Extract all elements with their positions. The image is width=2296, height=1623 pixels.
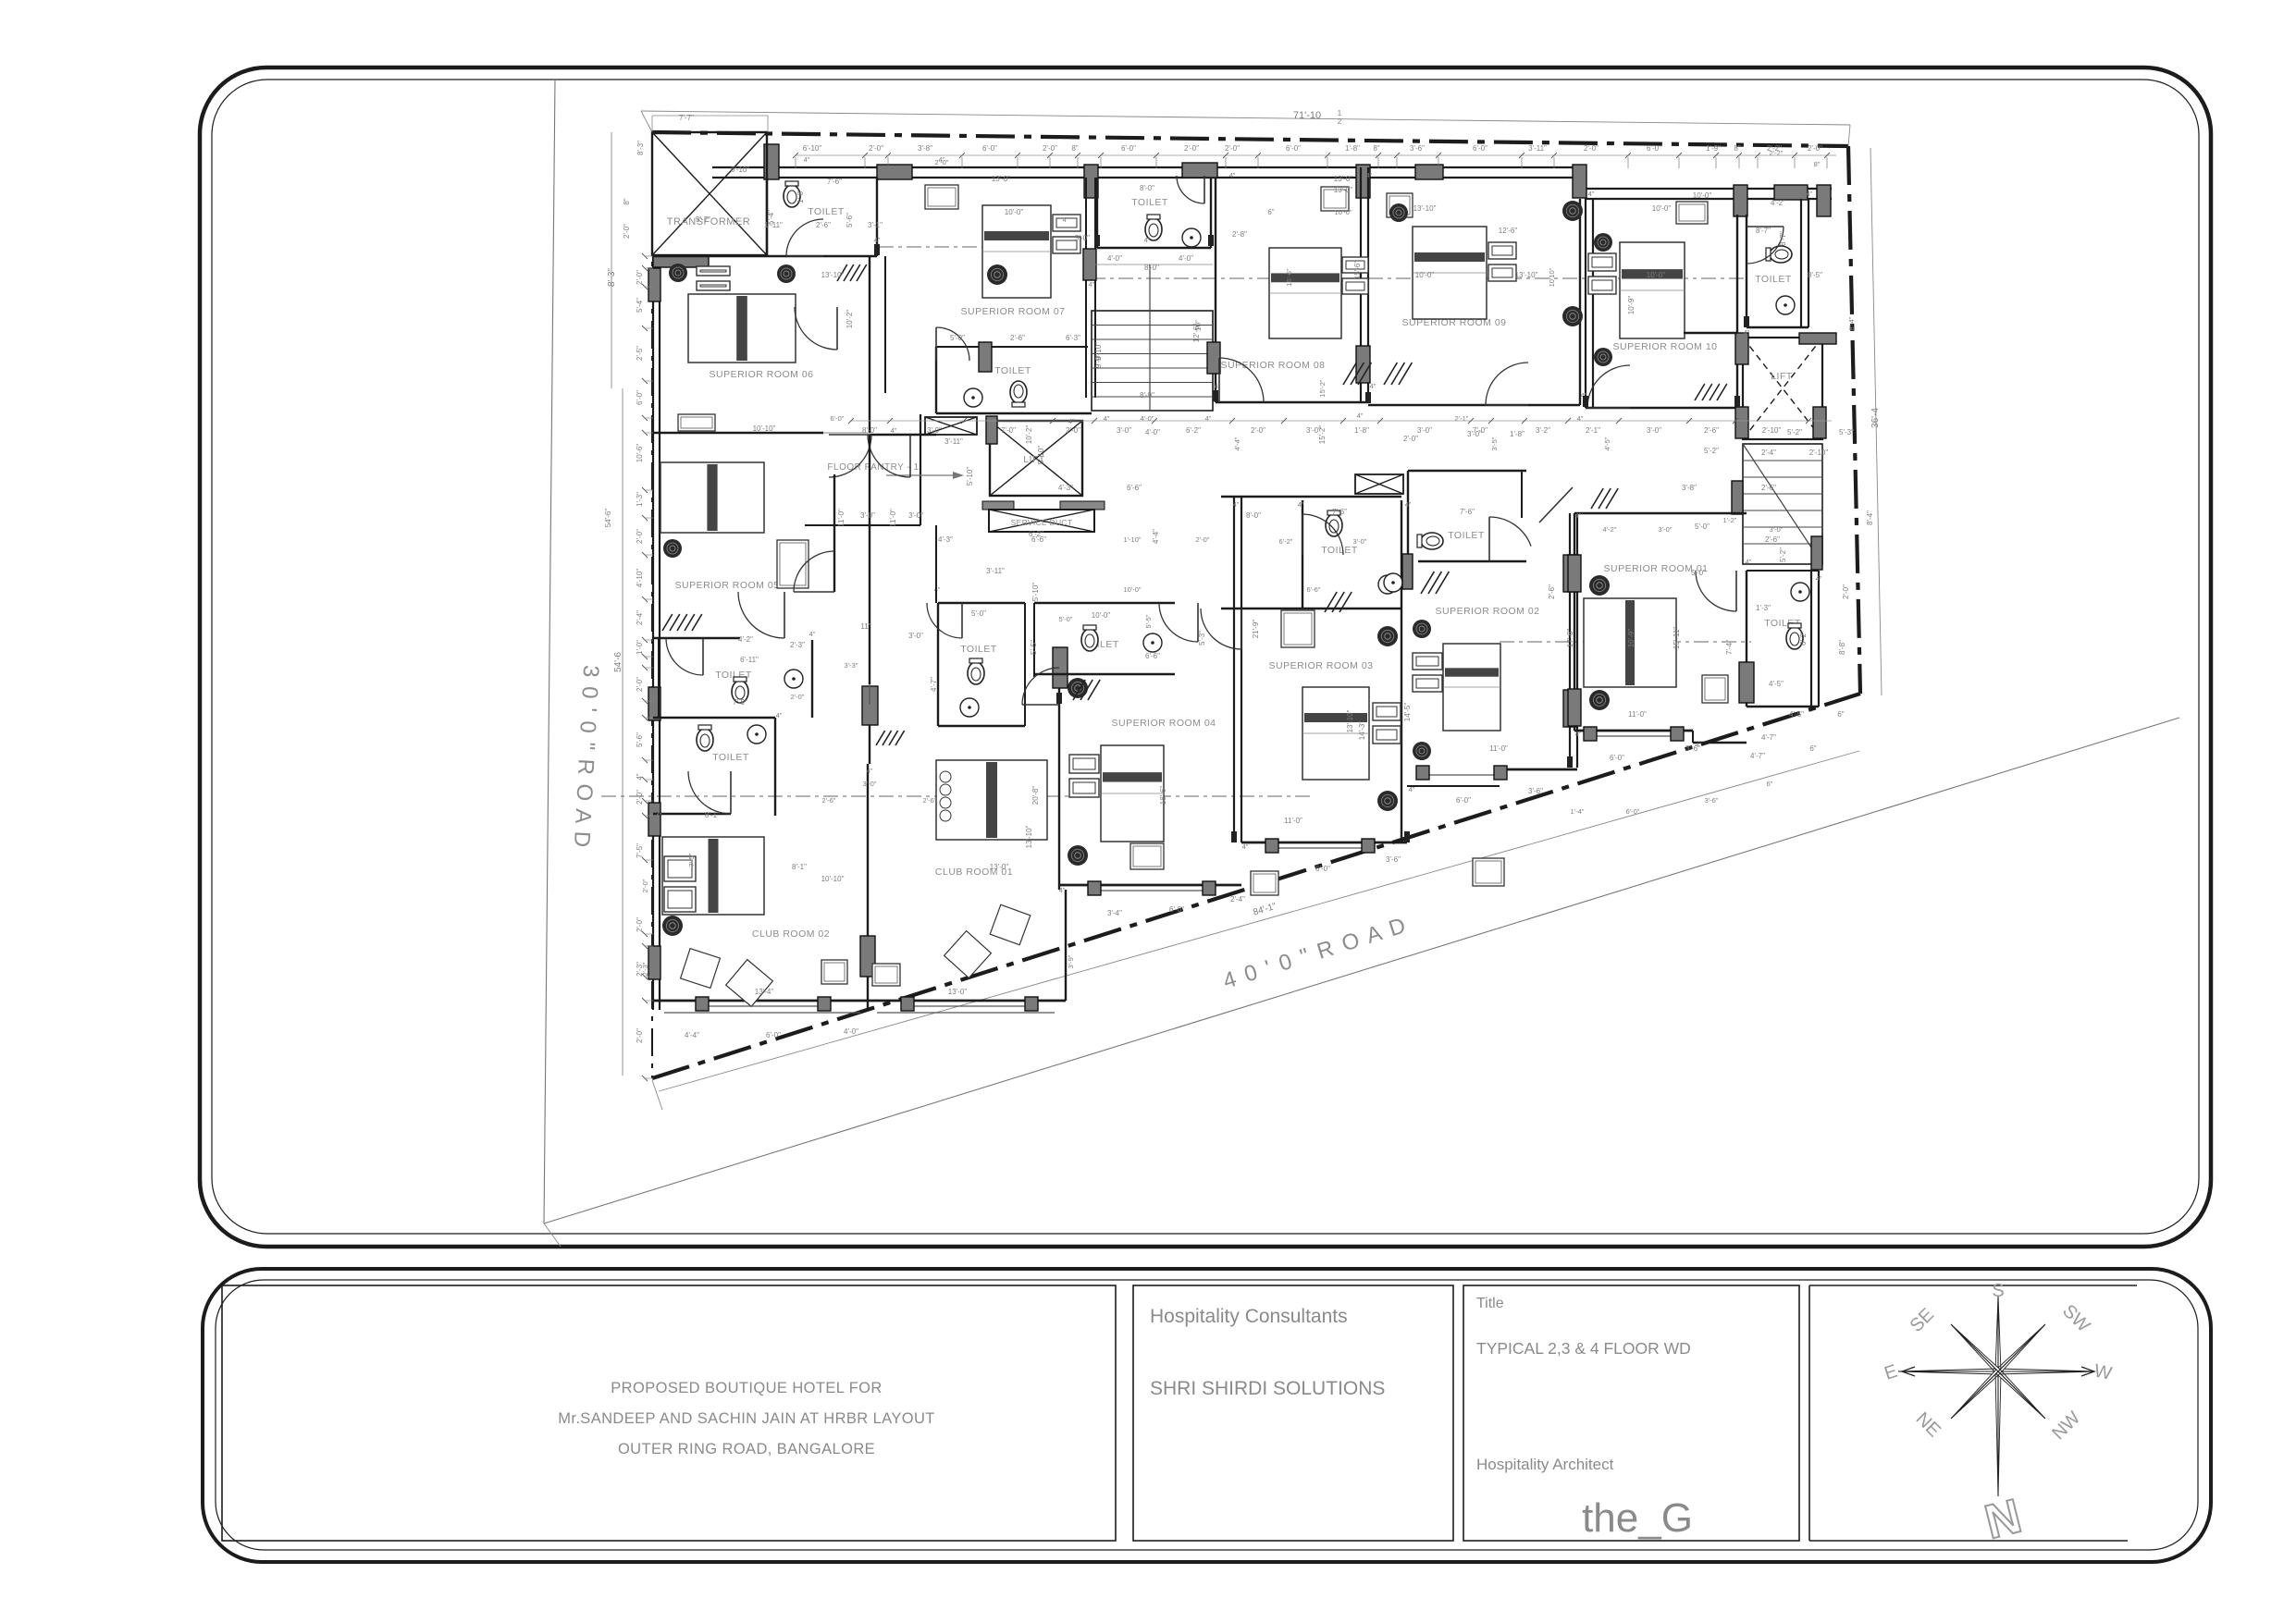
svg-text:SUPERIOR ROOM 04: SUPERIOR ROOM 04 xyxy=(1111,718,1216,729)
svg-text:10'-0": 10'-0" xyxy=(1415,271,1435,279)
svg-text:4": 4" xyxy=(1409,785,1415,793)
svg-text:4": 4" xyxy=(1366,171,1373,179)
svg-text:4": 4" xyxy=(1577,414,1584,423)
svg-text:4": 4" xyxy=(1744,328,1750,337)
svg-text:12'-6": 12'-6" xyxy=(1192,324,1201,343)
svg-text:TOILET: TOILET xyxy=(1321,545,1358,556)
svg-text:4": 4" xyxy=(1144,236,1151,244)
svg-text:6'-6": 6'-6" xyxy=(1307,585,1321,594)
svg-text:7'-5": 7'-5" xyxy=(636,843,644,858)
svg-text:10'-2": 10'-2" xyxy=(846,310,854,329)
svg-text:54'-6: 54'-6 xyxy=(613,652,623,672)
svg-text:7'-6": 7'-6" xyxy=(886,166,901,174)
svg-text:10'-10": 10'-10" xyxy=(753,424,776,433)
svg-text:3'-8": 3'-8" xyxy=(1682,484,1697,492)
svg-text:2'-3": 2'-3" xyxy=(641,962,649,976)
svg-text:6": 6" xyxy=(1267,208,1274,216)
svg-text:4": 4" xyxy=(867,767,873,775)
svg-text:2'-4": 2'-4" xyxy=(1761,449,1776,457)
svg-text:11'-0": 11'-0" xyxy=(1284,817,1302,825)
svg-text:8'-4": 8'-4" xyxy=(1847,316,1856,330)
svg-text:PROPOSED BOUTIQUE HOTEL FOR: PROPOSED BOUTIQUE HOTEL FOR xyxy=(611,1380,882,1396)
svg-text:7'-6": 7'-6" xyxy=(827,178,842,186)
svg-text:11'-0": 11'-0" xyxy=(889,509,897,527)
svg-text:4": 4" xyxy=(891,426,897,435)
svg-text:TYPICAL 2,3 & 4 FLOOR WD: TYPICAL 2,3 & 4 FLOOR WD xyxy=(1476,1339,1691,1358)
svg-text:3'-0": 3'-0" xyxy=(1117,426,1131,435)
svg-text:CLUB ROOM 02: CLUB ROOM 02 xyxy=(752,928,830,940)
svg-text:SUPERIOR ROOM 06: SUPERIOR ROOM 06 xyxy=(709,369,813,380)
svg-text:3'-0": 3'-0" xyxy=(908,632,923,640)
svg-text:2'-0": 2'-0" xyxy=(636,270,644,285)
svg-text:SUPERIOR ROOM 02: SUPERIOR ROOM 02 xyxy=(1435,606,1539,617)
svg-text:8'-0": 8'-0" xyxy=(1144,264,1159,272)
svg-text:4'-7": 4'-7" xyxy=(930,677,938,692)
svg-text:4": 4" xyxy=(804,155,810,164)
svg-text:4": 4" xyxy=(636,773,644,780)
svg-text:Hospitality Architect: Hospitality Architect xyxy=(1476,1456,1614,1473)
svg-text:3'-9": 3'-9" xyxy=(1067,954,1075,968)
svg-text:6'-10": 6'-10" xyxy=(803,144,822,153)
svg-text:4'-0": 4'-0" xyxy=(1145,428,1160,436)
svg-text:14'-5": 14'-5" xyxy=(1403,703,1412,722)
svg-text:6": 6" xyxy=(1809,744,1816,753)
svg-text:10'-0": 10'-0" xyxy=(1334,208,1352,216)
svg-text:6'-2": 6'-2" xyxy=(1279,537,1293,546)
svg-text:1'-8": 1'-8" xyxy=(1354,426,1369,435)
svg-text:3'-0": 3'-0" xyxy=(927,426,942,435)
svg-text:8": 8" xyxy=(1373,144,1379,153)
svg-text:3'-0": 3'-0" xyxy=(1647,426,1661,435)
svg-text:11": 11" xyxy=(860,622,870,631)
svg-text:8'-9": 8'-9" xyxy=(1140,391,1154,400)
svg-text:13'-0": 13'-0" xyxy=(948,988,968,996)
svg-text:2'-0": 2'-0" xyxy=(1842,584,1850,599)
svg-text:2'-4": 2'-4" xyxy=(636,610,644,625)
svg-text:4'-10": 4'-10" xyxy=(636,569,644,588)
svg-text:4'-4": 4'-4" xyxy=(1233,436,1241,450)
svg-text:7'-5": 7'-5" xyxy=(687,853,696,867)
svg-text:6'-0": 6'-0" xyxy=(831,414,845,423)
svg-text:8'-0": 8'-0" xyxy=(1140,184,1154,192)
svg-text:TOILET: TOILET xyxy=(712,752,749,763)
svg-text:4": 4" xyxy=(656,811,662,819)
svg-text:3'-8": 3'-8" xyxy=(918,144,932,153)
svg-text:11'-0": 11'-0" xyxy=(837,509,846,527)
svg-text:3'-6": 3'-6" xyxy=(1528,787,1543,795)
svg-text:1: 1 xyxy=(1338,109,1342,117)
svg-text:11'-0": 11'-0" xyxy=(1628,710,1647,719)
svg-text:4": 4" xyxy=(1233,500,1240,509)
svg-text:11'-0": 11'-0" xyxy=(1489,744,1508,753)
svg-text:21'-9": 21'-9" xyxy=(1252,620,1260,639)
svg-text:13'-10": 13'-10" xyxy=(1515,271,1538,279)
svg-text:4": 4" xyxy=(1588,190,1595,198)
svg-text:4'-0": 4'-0" xyxy=(1107,254,1122,263)
svg-text:6'-0": 6'-0" xyxy=(982,144,997,153)
svg-text:1'-3": 1'-3" xyxy=(1756,604,1771,612)
svg-text:2'-0": 2'-0" xyxy=(641,879,649,892)
svg-text:10'10": 10'10" xyxy=(1548,267,1556,287)
svg-text:4'-0": 4'-0" xyxy=(1141,414,1154,423)
svg-text:12'-6": 12'-6" xyxy=(1499,227,1518,235)
svg-text:4'-7": 4'-7" xyxy=(1761,733,1776,742)
svg-text:2'-3": 2'-3" xyxy=(790,641,805,649)
svg-text:3'-0": 3'-0" xyxy=(908,511,923,520)
svg-text:4": 4" xyxy=(1229,171,1236,179)
svg-text:13'-0": 13'-0" xyxy=(1334,186,1353,194)
svg-text:8'-3": 8'-3" xyxy=(607,268,617,287)
svg-text:13'-0": 13'-0" xyxy=(1334,175,1353,183)
svg-text:1'-3": 1'-3" xyxy=(636,492,644,507)
svg-text:4'-4": 4'-4" xyxy=(685,1031,699,1039)
svg-text:18'-6": 18'-6" xyxy=(1159,786,1167,805)
svg-text:4": 4" xyxy=(1063,215,1069,224)
svg-text:6'-2": 6'-2" xyxy=(1186,426,1201,435)
svg-text:3'-11": 3'-11" xyxy=(1528,144,1547,153)
svg-text:7'-0": 7'-0" xyxy=(1001,426,1016,435)
svg-text:4": 4" xyxy=(1405,500,1412,509)
svg-text:6'-6": 6'-6" xyxy=(1127,484,1142,492)
svg-text:2'-6": 2'-6" xyxy=(923,796,937,805)
svg-text:6'-0": 6'-0" xyxy=(1315,865,1330,873)
svg-text:8'-3": 8'-3" xyxy=(636,141,645,155)
svg-text:2'-0": 2'-0" xyxy=(1808,144,1822,153)
svg-text:5'-5": 5'-5" xyxy=(1030,640,1038,655)
svg-text:4": 4" xyxy=(1746,558,1752,566)
svg-text:TOILET: TOILET xyxy=(808,206,845,217)
svg-text:2'-0": 2'-0" xyxy=(1584,144,1599,153)
svg-text:4": 4" xyxy=(1807,190,1813,198)
svg-text:FLOOR PANTRY - 1: FLOOR PANTRY - 1 xyxy=(827,462,919,473)
svg-text:6": 6" xyxy=(1767,780,1773,788)
svg-text:SUPERIOR ROOM 07: SUPERIOR ROOM 07 xyxy=(960,306,1065,317)
svg-text:3'-11": 3'-11" xyxy=(944,437,963,446)
svg-text:10'-0": 10'-0" xyxy=(1693,191,1712,200)
svg-text:1'-6": 1'-6" xyxy=(796,189,805,203)
svg-text:9'-0": 9'-0" xyxy=(1094,353,1103,368)
svg-text:TOILET: TOILET xyxy=(960,644,997,655)
svg-text:TOILET: TOILET xyxy=(1448,530,1485,541)
svg-text:6'-0": 6'-0" xyxy=(1121,144,1136,153)
svg-text:3'-11": 3'-11" xyxy=(986,567,1005,575)
svg-text:10'-0": 10'-0" xyxy=(1123,585,1141,594)
svg-text:Title: Title xyxy=(1476,1296,1504,1311)
svg-text:4": 4" xyxy=(1816,574,1822,583)
svg-text:20'-8": 20'-8" xyxy=(1031,786,1040,805)
svg-text:6'-0": 6'-0" xyxy=(766,1031,781,1039)
svg-text:4": 4" xyxy=(874,236,881,244)
svg-text:5'-0": 5'-0" xyxy=(1691,569,1706,577)
svg-text:15'-2": 15'-2" xyxy=(1318,379,1327,397)
svg-text:5'-7": 5'-7" xyxy=(696,215,710,224)
svg-text:4": 4" xyxy=(1357,412,1364,420)
svg-text:8'-4": 8'-4" xyxy=(1866,510,1874,525)
svg-text:2'-0": 2'-0" xyxy=(636,917,644,932)
svg-text:2'-0": 2'-0" xyxy=(636,1028,644,1043)
svg-text:2'-0": 2'-0" xyxy=(636,677,644,692)
svg-text:2'-2": 2'-2" xyxy=(1770,149,1784,157)
svg-text:4'-3": 4'-3" xyxy=(1058,484,1073,492)
svg-text:10'-10": 10'-10" xyxy=(821,875,845,883)
svg-text:4": 4" xyxy=(1089,280,1095,289)
svg-text:SUPERIOR ROOM 05: SUPERIOR ROOM 05 xyxy=(674,580,779,591)
svg-text:2'-0": 2'-0" xyxy=(1225,144,1240,153)
svg-text:5'-0": 5'-0" xyxy=(971,609,986,618)
svg-text:2'-1": 2'-1" xyxy=(1586,426,1600,435)
svg-text:3'-3": 3'-3" xyxy=(845,661,858,670)
svg-text:3'-0": 3'-0" xyxy=(1467,430,1482,438)
svg-text:5'-0": 5'-0" xyxy=(1075,234,1090,242)
svg-text:7'-6": 7'-6" xyxy=(1332,508,1347,516)
svg-text:3'-0": 3'-0" xyxy=(860,511,875,520)
svg-text:15'-6": 15'-6" xyxy=(1353,261,1362,280)
svg-text:5'-2": 5'-2" xyxy=(1787,428,1802,436)
svg-text:4": 4" xyxy=(1205,414,1212,423)
svg-text:8": 8" xyxy=(1071,144,1078,153)
svg-text:8": 8" xyxy=(1814,160,1821,168)
svg-text:3'-6": 3'-6" xyxy=(1410,144,1425,153)
svg-text:2'-5": 2'-5" xyxy=(636,346,644,361)
svg-text:6'-0": 6'-0" xyxy=(1286,144,1301,153)
svg-text:8'-8": 8'-8" xyxy=(1838,640,1846,655)
svg-text:8'-7": 8'-7" xyxy=(1756,227,1771,235)
svg-text:5'-3": 5'-3" xyxy=(1839,428,1854,436)
svg-text:4": 4" xyxy=(1370,382,1376,390)
svg-text:4": 4" xyxy=(1740,412,1747,420)
svg-text:10'-9": 10'-9" xyxy=(1627,629,1636,648)
svg-text:3'-0": 3'-0" xyxy=(1659,525,1673,534)
svg-text:3'-0": 3'-0" xyxy=(1353,537,1367,546)
svg-text:4'-0": 4'-0" xyxy=(844,1027,858,1036)
svg-text:8'-0": 8'-0" xyxy=(862,426,877,435)
svg-text:1'-4": 1'-4" xyxy=(1571,807,1585,816)
svg-text:3'-0": 3'-0" xyxy=(1770,525,1784,534)
svg-text:15'-6": 15'-6" xyxy=(1285,268,1293,286)
svg-text:4'-4": 4'-4" xyxy=(1152,529,1160,544)
svg-text:2'-0": 2'-0" xyxy=(935,158,949,166)
svg-text:SERVICE DUCT: SERVICE DUCT xyxy=(1011,518,1073,527)
svg-text:8'-5": 8'-5" xyxy=(1808,271,1822,279)
svg-text:3'-1": 3'-1" xyxy=(868,221,883,229)
svg-text:54'-6": 54'-6" xyxy=(604,509,612,528)
svg-text:2'-0": 2'-0" xyxy=(869,144,883,153)
svg-text:4": 4" xyxy=(1215,382,1221,390)
svg-text:10'-0": 10'-0" xyxy=(1092,611,1111,620)
svg-text:SHRI SHIRDI SOLUTIONS: SHRI SHIRDI SOLUTIONS xyxy=(1150,1378,1385,1399)
svg-text:6": 6" xyxy=(1837,710,1844,719)
svg-text:17'-6": 17'-6" xyxy=(1566,629,1574,648)
svg-text:10'-2": 10'-2" xyxy=(1025,425,1033,445)
svg-text:8": 8" xyxy=(623,198,631,204)
svg-text:6'-6": 6'-6" xyxy=(1145,652,1160,660)
svg-text:2'-0": 2'-0" xyxy=(623,224,631,239)
svg-text:15'-2": 15'-2" xyxy=(1318,425,1327,445)
svg-text:LIFT: LIFT xyxy=(1771,371,1793,382)
svg-text:2'-0": 2'-0" xyxy=(1184,144,1199,153)
svg-text:2'-1": 2'-1" xyxy=(1455,414,1469,423)
svg-text:TOILET: TOILET xyxy=(994,365,1031,376)
svg-text:3'-6": 3'-6" xyxy=(1705,796,1719,805)
svg-text:13'-10": 13'-10" xyxy=(1346,709,1354,732)
svg-text:4'-7": 4'-7" xyxy=(1750,752,1765,760)
svg-text:5'-4": 5'-4" xyxy=(767,210,775,225)
svg-text:SUPERIOR ROOM 03: SUPERIOR ROOM 03 xyxy=(1268,660,1373,671)
svg-text:5'-2": 5'-2" xyxy=(1779,547,1787,562)
svg-text:6'-0": 6'-0" xyxy=(1456,796,1471,805)
svg-text:6'-10": 6'-10" xyxy=(731,166,750,174)
svg-text:3'-2": 3'-2" xyxy=(1536,426,1550,435)
svg-text:5'-10": 5'-10" xyxy=(966,467,974,486)
svg-text:1'-2": 1'-2" xyxy=(1723,516,1737,524)
svg-text:8'-1": 8'-1" xyxy=(792,863,807,871)
svg-text:4'-0": 4'-0" xyxy=(1179,254,1193,263)
svg-text:5'-0": 5'-0" xyxy=(950,334,965,342)
svg-text:14'-3": 14'-3" xyxy=(1358,721,1366,741)
svg-text:1'-8": 1'-8" xyxy=(1345,144,1360,153)
svg-text:2'-6": 2'-6" xyxy=(1704,426,1719,435)
svg-text:2: 2 xyxy=(1338,117,1342,126)
svg-text:Mr.SANDEEP AND SACHIN JAIN AT: Mr.SANDEEP AND SACHIN JAIN AT HRBR LAYOU… xyxy=(558,1410,935,1427)
svg-text:2'-0": 2'-0" xyxy=(636,529,644,544)
svg-text:4'-3": 4'-3" xyxy=(938,535,953,544)
svg-text:13'-10": 13'-10" xyxy=(821,271,845,279)
svg-text:Hospitality Consultants: Hospitality Consultants xyxy=(1150,1306,1348,1327)
svg-text:OUTER RING ROAD, BANGALORE: OUTER RING ROAD, BANGALORE xyxy=(618,1441,875,1457)
svg-text:10'-0": 10'-0" xyxy=(1647,271,1666,279)
svg-text:5'-0": 5'-0" xyxy=(1695,523,1710,531)
svg-text:7'-4": 7'-4" xyxy=(1725,640,1734,655)
svg-text:1'-9": 1'-9" xyxy=(1706,144,1721,153)
svg-text:2'-6": 2'-6" xyxy=(816,221,831,229)
svg-text:6'-0": 6'-0" xyxy=(1626,807,1640,816)
svg-text:3'-0": 3'-0" xyxy=(863,780,877,788)
svg-text:2'-0": 2'-0" xyxy=(636,790,644,805)
svg-text:7'-9": 7'-9" xyxy=(733,698,747,707)
svg-text:10'-6": 10'-6" xyxy=(636,444,644,463)
svg-text:4": 4" xyxy=(1298,500,1304,509)
svg-text:2'-0": 2'-0" xyxy=(1043,144,1057,153)
svg-text:6'-11": 6'-11" xyxy=(740,656,759,664)
svg-text:4": 4" xyxy=(934,585,941,594)
svg-text:2'-0": 2'-0" xyxy=(1066,426,1080,435)
svg-text:15'-11": 15'-11" xyxy=(1673,627,1681,649)
svg-text:5'-0": 5'-0" xyxy=(1059,615,1073,623)
svg-text:5'-6": 5'-6" xyxy=(636,732,644,747)
svg-text:3'-4": 3'-4" xyxy=(1107,909,1122,917)
svg-text:5'-6": 5'-6" xyxy=(846,213,854,227)
svg-text:2'-6": 2'-6" xyxy=(1010,334,1025,342)
svg-text:13'-10": 13'-10" xyxy=(1025,825,1033,848)
svg-text:2'-6": 2'-6" xyxy=(1765,535,1780,544)
svg-text:6'-0": 6'-0" xyxy=(636,390,644,405)
svg-text:2'-0": 2'-0" xyxy=(1196,535,1210,544)
svg-text:71'-10: 71'-10 xyxy=(1293,110,1321,121)
svg-text:2'-0": 2'-0" xyxy=(791,693,805,701)
svg-text:10'-0": 10'-0" xyxy=(1005,208,1024,216)
svg-text:7'-7": 7'-7" xyxy=(679,114,694,122)
svg-text:6'-2": 6'-2" xyxy=(1029,530,1043,538)
svg-text:4": 4" xyxy=(1242,842,1249,851)
svg-text:4'-5": 4'-5" xyxy=(1603,436,1611,450)
svg-text:SUPERIOR ROOM 10: SUPERIOR ROOM 10 xyxy=(1612,341,1717,352)
svg-text:3'-5": 3'-5" xyxy=(1490,436,1499,450)
svg-text:the_G: the_G xyxy=(1582,1495,1693,1541)
svg-text:1'-10": 1'-10" xyxy=(1123,535,1141,544)
svg-text:3'-0": 3'-0" xyxy=(1417,426,1432,435)
svg-text:13'-0": 13'-0" xyxy=(990,863,1009,871)
svg-text:4": 4" xyxy=(1059,886,1066,894)
svg-text:6'-0": 6'-0" xyxy=(1647,144,1661,153)
svg-text:6'-0": 6'-0" xyxy=(1610,754,1624,762)
svg-text:2'-4": 2'-4" xyxy=(1230,895,1245,904)
svg-text:2'-10": 2'-10" xyxy=(1762,426,1782,435)
svg-text:6'-0": 6'-0" xyxy=(1473,144,1487,153)
svg-text:13'-0": 13'-0" xyxy=(992,175,1011,183)
svg-text:10'-9": 10'-9" xyxy=(1627,296,1636,315)
svg-text:6'-2": 6'-2" xyxy=(1799,631,1808,646)
svg-text:5'-10": 5'-10" xyxy=(1031,583,1040,602)
svg-text:4": 4" xyxy=(1054,656,1060,664)
svg-text:2'-10": 2'-10" xyxy=(1809,449,1829,457)
svg-text:8": 8" xyxy=(1734,144,1740,153)
svg-text:2'-8": 2'-8" xyxy=(1232,230,1247,239)
svg-text:5'-5": 5'-5" xyxy=(1144,614,1153,628)
svg-text:13'-10": 13'-10" xyxy=(1413,204,1437,213)
svg-text:2'-0": 2'-0" xyxy=(1403,435,1418,443)
svg-text:4'-2": 4'-2" xyxy=(1603,525,1617,534)
svg-text:4'-5": 4'-5" xyxy=(1789,710,1804,719)
svg-text:S: S xyxy=(1992,1281,2004,1301)
svg-text:4'-2": 4'-2" xyxy=(1771,199,1785,207)
svg-text:4": 4" xyxy=(776,711,783,719)
svg-text:4'-2": 4'-2" xyxy=(738,635,753,644)
svg-text:10'-0": 10'-0" xyxy=(1652,204,1672,213)
svg-text:2'-6": 2'-6" xyxy=(822,796,836,805)
svg-text:4": 4" xyxy=(1068,417,1075,425)
svg-text:TOILET: TOILET xyxy=(1131,197,1168,208)
svg-text:2'-6": 2'-6" xyxy=(1548,584,1556,599)
svg-text:36'-4: 36'-4 xyxy=(1870,408,1881,428)
svg-text:7'-6": 7'-6" xyxy=(1460,508,1475,516)
svg-text:8'-7": 8'-7" xyxy=(1779,231,1787,246)
svg-text:TOILET: TOILET xyxy=(1755,274,1792,285)
svg-text:4'-5": 4'-5" xyxy=(1769,680,1784,688)
svg-text:4": 4" xyxy=(1104,414,1110,423)
svg-text:5'-4": 5'-4" xyxy=(636,298,644,313)
svg-text:2'-0": 2'-0" xyxy=(1251,426,1265,435)
svg-text:6'-3": 6'-3" xyxy=(1066,334,1080,342)
svg-text:5'-3": 5'-3" xyxy=(1198,631,1206,646)
svg-text:6'-0": 6'-0" xyxy=(1169,905,1184,914)
svg-text:2'-6": 2'-6" xyxy=(1761,484,1776,492)
svg-text:4": 4" xyxy=(1696,741,1702,749)
svg-text:8'-1": 8'-1" xyxy=(705,811,720,819)
svg-text:1'-0": 1'-0" xyxy=(636,640,644,655)
svg-text:3'-6": 3'-6" xyxy=(1386,855,1401,864)
svg-text:4": 4" xyxy=(1575,730,1582,738)
svg-text:5'-10": 5'-10" xyxy=(1037,446,1045,465)
svg-text:5'-2": 5'-2" xyxy=(1704,447,1719,455)
svg-text:4": 4" xyxy=(1575,511,1582,520)
svg-text:13'-4": 13'-4" xyxy=(755,988,774,996)
svg-text:8'-0": 8'-0" xyxy=(1246,511,1261,520)
svg-text:1'-8": 1'-8" xyxy=(1510,430,1524,438)
svg-text:4": 4" xyxy=(809,630,816,638)
